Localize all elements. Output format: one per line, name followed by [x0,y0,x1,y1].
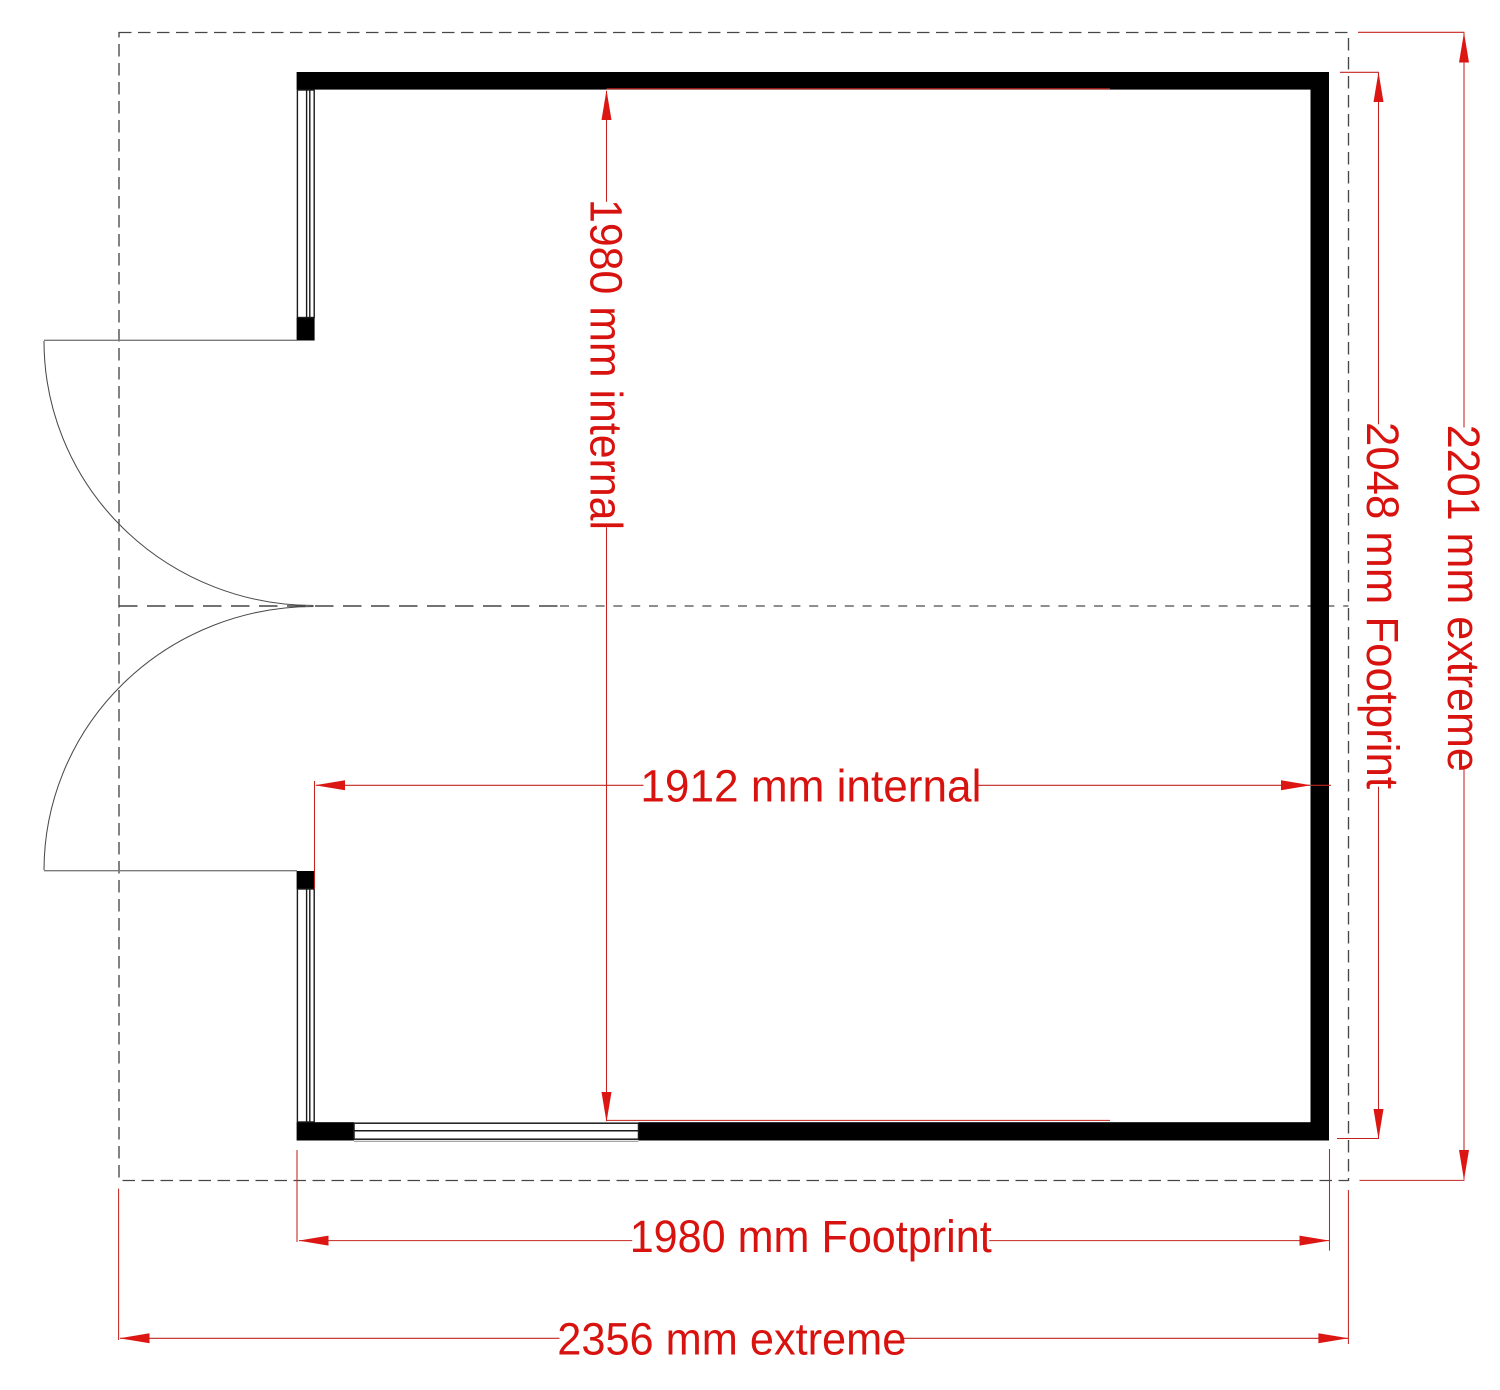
svg-text:1912 mm internal: 1912 mm internal [640,761,981,812]
svg-text:1980 mm Footprint: 1980 mm Footprint [630,1211,992,1262]
svg-text:2201 mm extreme: 2201 mm extreme [1438,425,1489,772]
svg-text:2356 mm extreme: 2356 mm extreme [557,1314,906,1365]
svg-text:1980 mm internal: 1980 mm internal [580,199,631,530]
svg-text:2048 mm Footprint: 2048 mm Footprint [1357,422,1408,789]
